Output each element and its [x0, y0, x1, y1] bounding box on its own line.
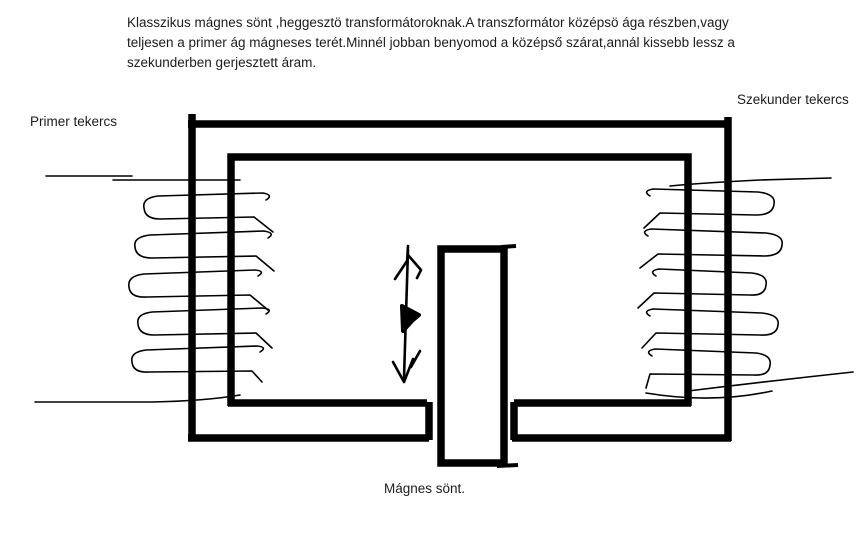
secondary-lead-top	[670, 178, 831, 186]
primary-coil-winding	[35, 176, 274, 402]
shunt-movement-arrow	[393, 246, 421, 382]
magnetic-shunt-bar	[441, 246, 518, 466]
transformer-diagram	[0, 0, 864, 540]
arrow-down-head	[393, 351, 420, 382]
paint-drawing-canvas: Klasszikus mágnes sönt ,heggesztö transf…	[0, 0, 864, 540]
secondary-coil-winding	[638, 178, 853, 398]
primary-lead-bottom	[35, 395, 240, 402]
transformer-core-inner-outline	[228, 157, 691, 440]
transformer-core-outer-outline	[188, 114, 731, 441]
arrow-grip-pennant	[402, 306, 419, 331]
